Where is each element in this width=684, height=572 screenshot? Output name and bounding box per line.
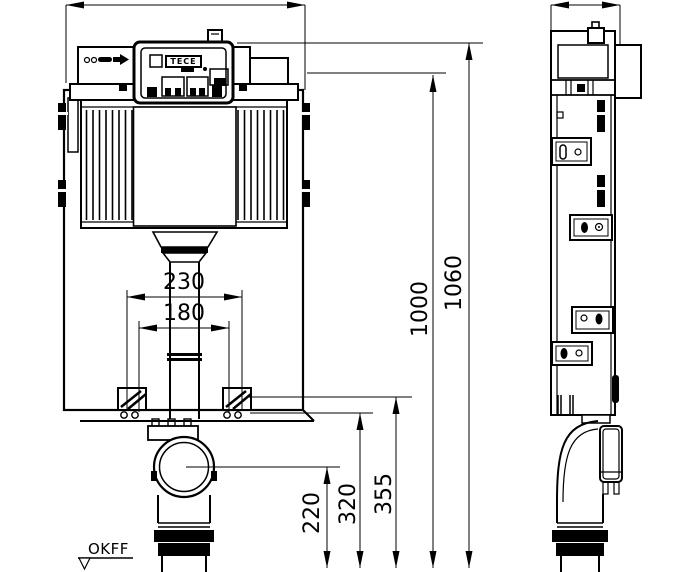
dim-label-1060: 1060	[443, 243, 467, 323]
tank-top-left-block	[78, 47, 135, 84]
dim-label-1000: 1000	[409, 269, 433, 349]
outlet-funnel	[153, 232, 217, 262]
drain-elbow-front	[148, 419, 217, 497]
drain-pipe-front	[154, 495, 214, 572]
side-view	[551, 22, 641, 572]
datum-triangle-icon	[79, 558, 90, 569]
side-knob	[588, 28, 604, 43]
dim-label-180: 180	[154, 302, 214, 326]
wall-bracket-plate	[615, 45, 641, 98]
side-bracket-c	[572, 307, 613, 333]
side-bracket-a	[552, 138, 591, 165]
mounting-bracket-right	[223, 388, 251, 418]
tank-top-right-block	[233, 47, 288, 84]
dim-label-220: 220	[301, 473, 325, 553]
tank-access-panel	[134, 107, 237, 226]
drain-elbow-side	[557, 421, 622, 502]
brand-logo: TECE	[165, 55, 202, 68]
dim-label-355: 355	[373, 454, 397, 534]
drain-pipe-side	[552, 494, 608, 572]
dim-label-230: 230	[154, 271, 214, 295]
dim-label-320: 320	[337, 464, 361, 544]
frame-side-panel	[68, 98, 78, 152]
mounting-bracket-left	[118, 388, 146, 418]
technical-drawing-page: 230 180 220 320 355 1000 1060 OKFF TECE	[0, 0, 684, 572]
floor-datum-symbol	[78, 558, 133, 569]
side-bracket-b	[570, 215, 612, 240]
side-bracket-d	[552, 342, 592, 365]
floor-datum-label: OKFF	[88, 542, 129, 557]
